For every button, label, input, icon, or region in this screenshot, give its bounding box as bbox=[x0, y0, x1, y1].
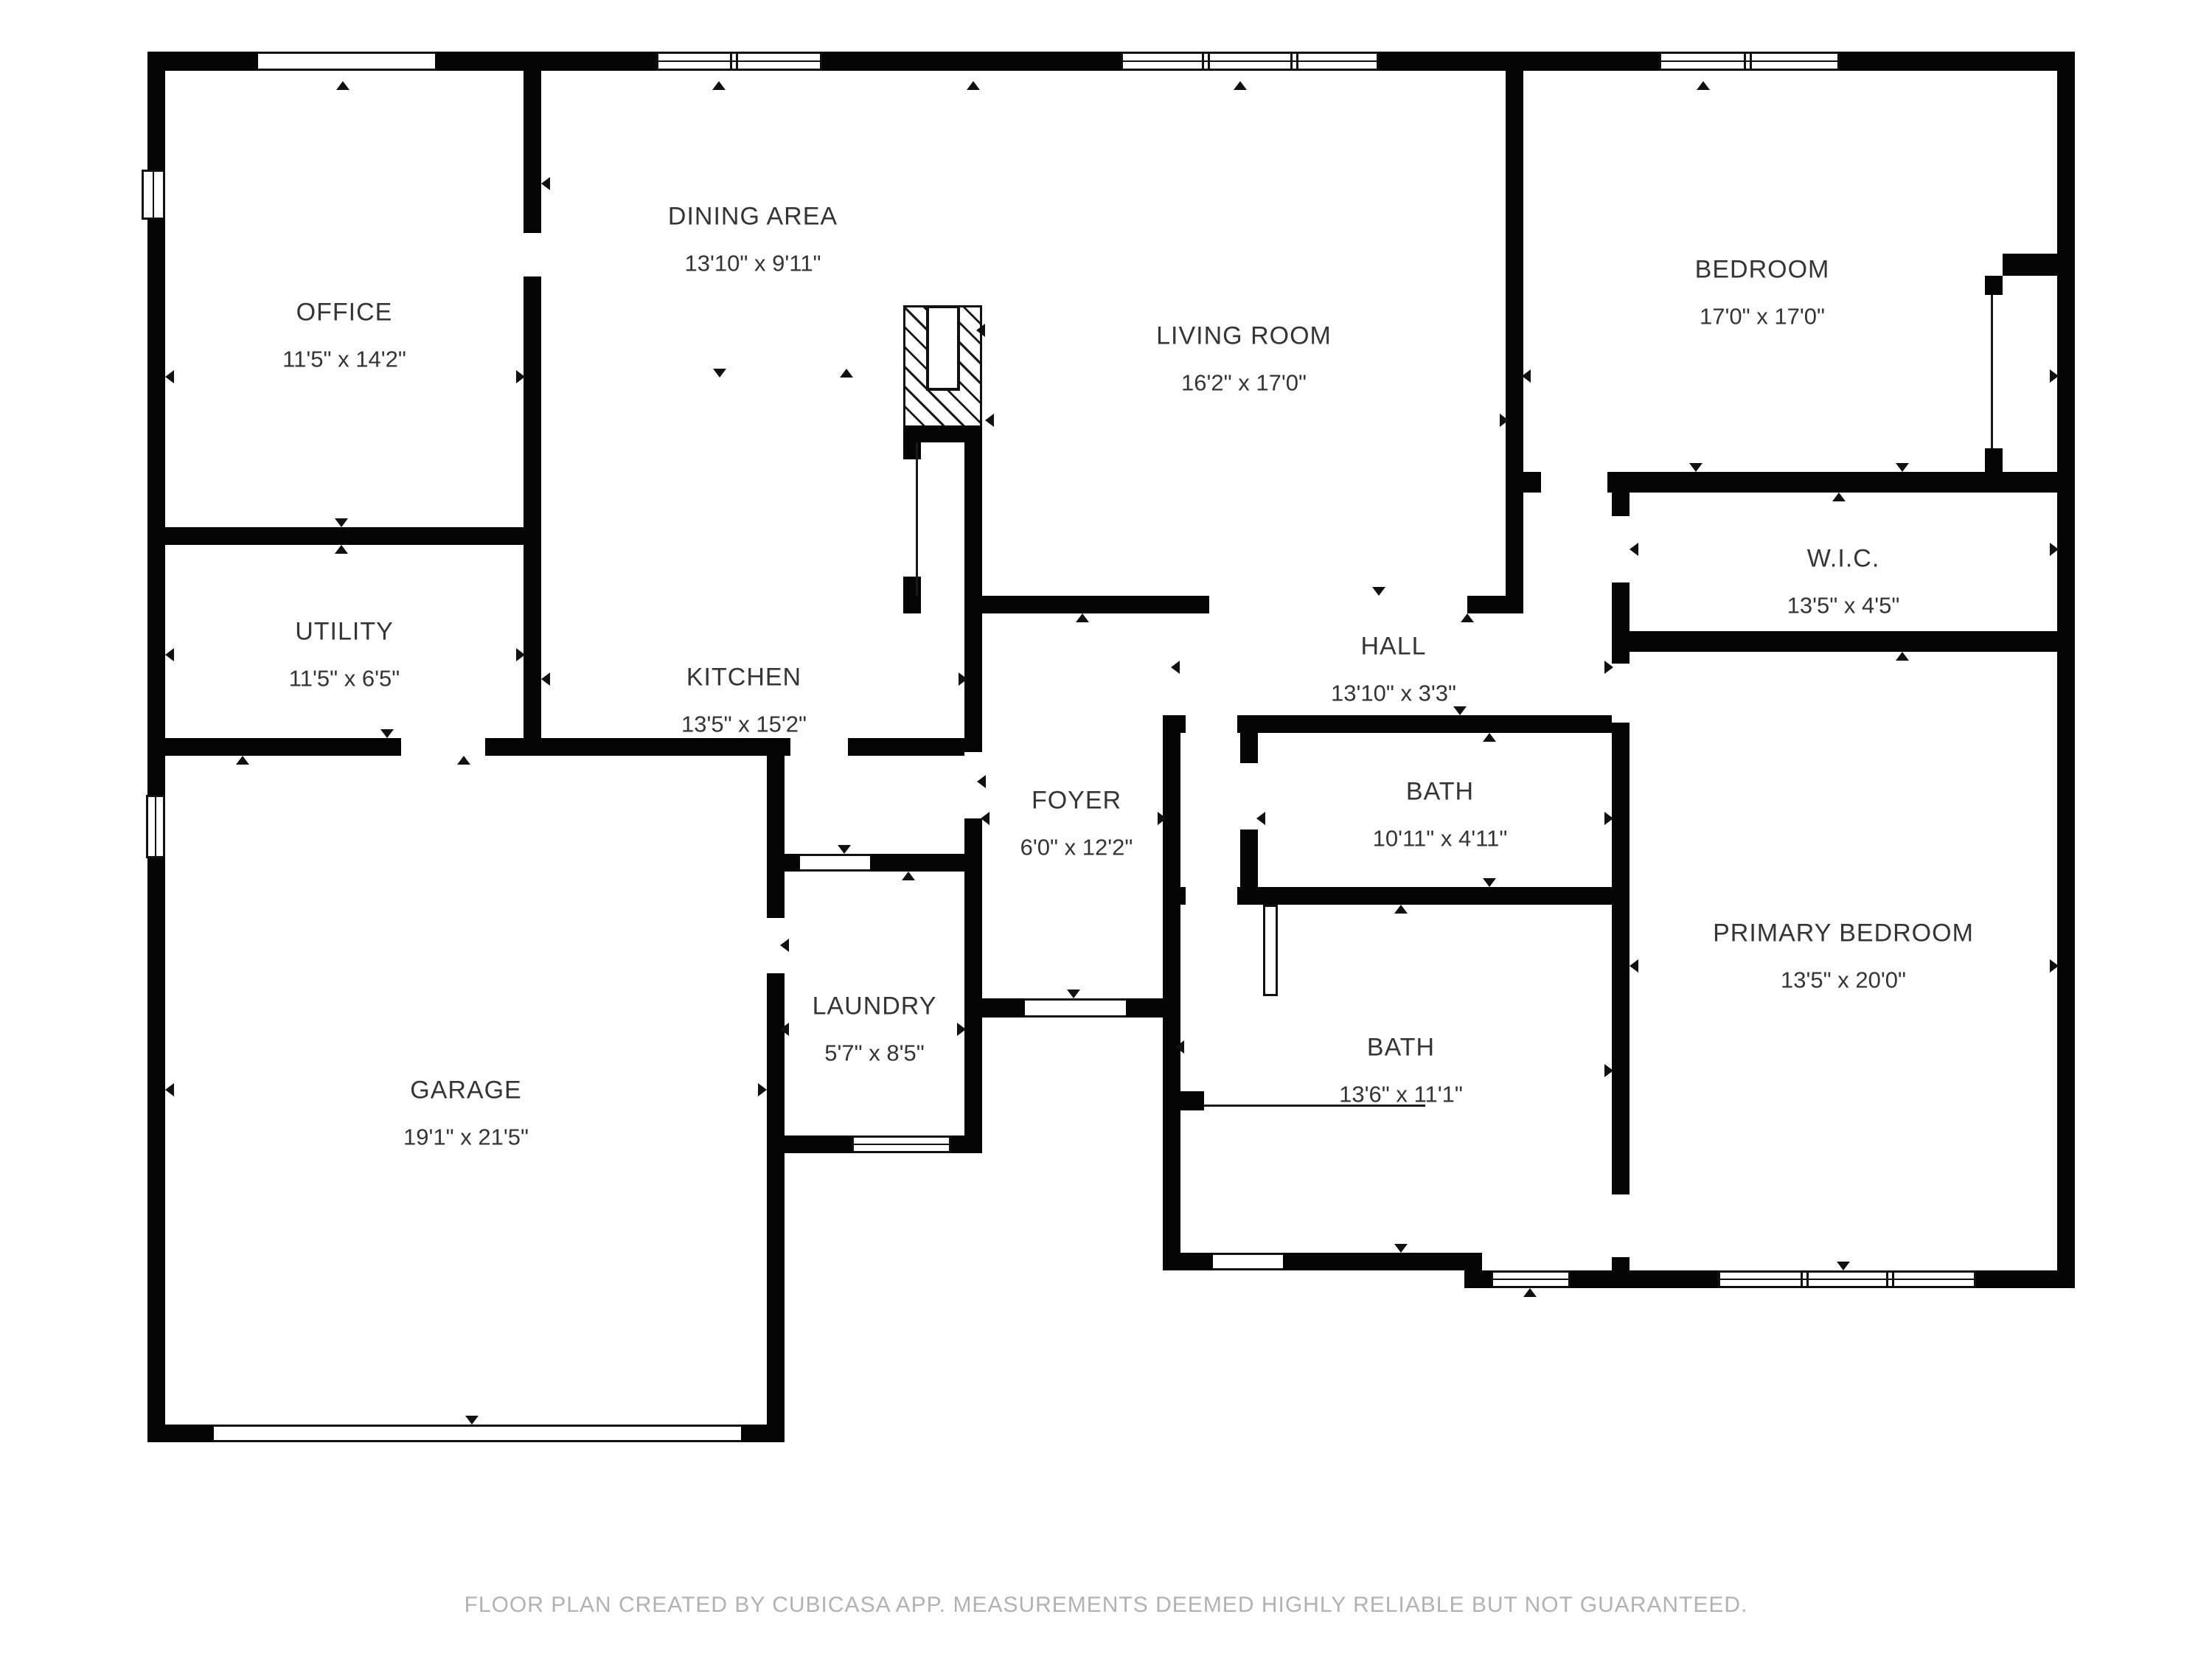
dimension-arrow-left bbox=[1630, 959, 1638, 973]
cased-opening bbox=[1213, 1253, 1283, 1270]
dimension-arrow-up bbox=[1483, 733, 1496, 742]
dimension-arrow-up bbox=[712, 81, 726, 90]
door-leaf-line bbox=[916, 439, 918, 596]
window-mullion bbox=[736, 52, 738, 71]
shower-glass bbox=[1263, 905, 1278, 996]
dimension-arrow-up bbox=[1394, 905, 1408, 914]
window-center-line bbox=[852, 1144, 951, 1145]
wall bbox=[1612, 472, 1630, 1270]
dimension-arrow-left bbox=[1522, 369, 1531, 383]
dimension-arrow-right bbox=[1500, 414, 1509, 427]
fireplace-firebox bbox=[926, 305, 960, 391]
dimension-arrow-right bbox=[758, 1083, 767, 1096]
dimension-arrow-left bbox=[985, 414, 994, 427]
wall bbox=[1506, 71, 1523, 613]
room-label-wic: W.I.C.13'5" x 4'5" bbox=[1787, 545, 1900, 619]
dimension-arrow-up bbox=[1461, 613, 1474, 622]
dimension-arrow-right bbox=[2050, 959, 2059, 973]
wall bbox=[2057, 52, 2075, 1288]
room-dimensions: 5'7" x 8'5" bbox=[813, 1040, 937, 1067]
dimension-arrow-right bbox=[1604, 1064, 1613, 1077]
floor-plan: OFFICE11'5" x 14'2"DINING AREA13'10" x 9… bbox=[0, 0, 2212, 1659]
dimension-arrow-down bbox=[335, 518, 348, 527]
window-mullion bbox=[1801, 1270, 1803, 1288]
dimension-arrow-up bbox=[967, 81, 980, 90]
dimension-arrow-up bbox=[1697, 81, 1710, 90]
dimension-arrow-left bbox=[780, 939, 789, 952]
fireplace-base bbox=[903, 426, 982, 442]
room-name: W.I.C. bbox=[1787, 545, 1900, 574]
window-center-line bbox=[155, 795, 156, 858]
door-opening bbox=[1612, 516, 1630, 582]
window-tick bbox=[1377, 52, 1379, 71]
dimension-arrow-left bbox=[977, 775, 986, 788]
door-opening bbox=[1612, 664, 1630, 723]
dimension-arrow-up bbox=[1832, 493, 1846, 501]
window-center-line bbox=[153, 170, 154, 220]
window-mullion bbox=[1750, 52, 1752, 71]
dimension-arrow-up bbox=[1234, 81, 1247, 90]
window-tick bbox=[146, 795, 165, 797]
dimension-arrow-down bbox=[465, 1416, 479, 1425]
dimension-arrow-down bbox=[1837, 1262, 1850, 1270]
door-opening bbox=[401, 738, 485, 756]
window-mullion bbox=[1744, 52, 1746, 71]
room-name: BATH bbox=[1339, 1034, 1463, 1062]
room-name: BEDROOM bbox=[1695, 256, 1830, 285]
room-dimensions: 19'1" x 21'5" bbox=[403, 1124, 529, 1151]
wall bbox=[1985, 276, 2003, 295]
room-label-office: OFFICE11'5" x 14'2" bbox=[282, 299, 406, 373]
room-dimensions: 13'10" x 9'11" bbox=[668, 251, 838, 277]
room-dimensions: 13'10" x 3'3" bbox=[1331, 681, 1456, 707]
dimension-arrow-left bbox=[976, 324, 985, 337]
window-tick bbox=[1837, 52, 1840, 71]
wall bbox=[524, 71, 541, 233]
wall bbox=[524, 276, 541, 738]
dimension-arrow-down bbox=[1372, 587, 1385, 596]
dimension-arrow-up bbox=[1896, 652, 1909, 661]
dimension-arrow-down bbox=[1067, 990, 1080, 998]
window-center-line bbox=[656, 60, 822, 62]
dimension-arrow-up bbox=[335, 545, 348, 554]
cased-opening bbox=[800, 854, 870, 872]
window-center-line bbox=[1718, 1279, 1976, 1280]
room-name: FOYER bbox=[1020, 787, 1133, 815]
window-mullion bbox=[1296, 52, 1298, 71]
window-mullion bbox=[1208, 52, 1210, 71]
room-label-foyer: FOYER6'0" x 12'2" bbox=[1020, 787, 1133, 861]
room-name: HALL bbox=[1331, 633, 1456, 661]
door-opening bbox=[1186, 887, 1237, 905]
dimension-arrow-left bbox=[541, 672, 550, 686]
window-tick bbox=[1568, 1270, 1571, 1288]
window-tick bbox=[852, 1135, 854, 1153]
room-label-living-room: LIVING ROOM16'2" x 17'0" bbox=[1156, 322, 1332, 397]
window-tick bbox=[820, 52, 822, 71]
cased-opening bbox=[214, 1425, 741, 1442]
wall bbox=[165, 527, 524, 545]
window-center-line bbox=[1121, 60, 1379, 62]
footer-disclaimer: FLOOR PLAN CREATED BY CUBICASA APP. MEAS… bbox=[0, 1593, 2212, 1618]
window-tick bbox=[1974, 1270, 1976, 1288]
room-name: DINING AREA bbox=[668, 203, 838, 232]
wall bbox=[1163, 1253, 1482, 1270]
room-label-bath-upper: BATH10'11" x 4'11" bbox=[1373, 778, 1508, 852]
door-opening bbox=[1541, 472, 1607, 493]
dimension-arrow-right bbox=[2050, 543, 2059, 556]
dimension-arrow-down bbox=[713, 369, 726, 378]
door-opening bbox=[1209, 596, 1467, 613]
door-opening bbox=[1612, 1194, 1630, 1257]
room-dimensions: 13'5" x 4'5" bbox=[1787, 593, 1900, 619]
window-tick bbox=[146, 856, 165, 858]
wall bbox=[1163, 715, 1180, 1270]
cased-opening bbox=[258, 52, 435, 71]
dimension-arrow-left bbox=[780, 1023, 789, 1036]
door-leaf-line bbox=[1991, 295, 1993, 448]
room-name: UTILITY bbox=[289, 618, 400, 647]
dimension-arrow-up bbox=[236, 756, 249, 765]
room-dimensions: 17'0" x 17'0" bbox=[1695, 304, 1830, 330]
window-tick bbox=[1121, 52, 1123, 71]
room-label-bath-lower: BATH13'6" x 11'1" bbox=[1339, 1034, 1463, 1108]
window-mullion bbox=[730, 52, 732, 71]
room-label-utility: UTILITY11'5" x 6'5" bbox=[289, 618, 400, 692]
dimension-arrow-down bbox=[1394, 1244, 1408, 1253]
room-dimensions: 16'2" x 17'0" bbox=[1156, 370, 1332, 397]
room-dimensions: 13'6" x 11'1" bbox=[1339, 1082, 1463, 1108]
window-tick bbox=[656, 52, 658, 71]
dimension-arrow-up bbox=[902, 872, 915, 880]
door-opening bbox=[1186, 715, 1237, 733]
dimension-arrow-right bbox=[2050, 369, 2059, 383]
dimension-arrow-down bbox=[380, 729, 394, 738]
window-center-line bbox=[1491, 1279, 1571, 1280]
wall bbox=[1985, 448, 2003, 472]
dimension-arrow-right bbox=[959, 672, 967, 686]
door-opening bbox=[524, 233, 541, 276]
dimension-arrow-left bbox=[541, 177, 550, 190]
dimension-arrow-up bbox=[336, 81, 349, 90]
room-dimensions: 11'5" x 14'2" bbox=[282, 347, 406, 373]
window-tick bbox=[1491, 1270, 1493, 1288]
room-label-primary-bedroom: PRIMARY BEDROOM13'5" x 20'0" bbox=[1713, 919, 1974, 994]
room-name: LIVING ROOM bbox=[1156, 322, 1332, 351]
wall bbox=[1612, 631, 2075, 652]
dimension-arrow-down bbox=[1453, 706, 1467, 715]
dimension-arrow-down bbox=[1483, 878, 1496, 887]
dimension-arrow-up bbox=[1523, 1288, 1537, 1297]
dimension-arrow-down bbox=[1896, 463, 1909, 472]
window-tick bbox=[1718, 1270, 1720, 1288]
dimension-arrow-left bbox=[165, 370, 174, 383]
dimension-arrow-right bbox=[1158, 812, 1166, 825]
room-name: GARAGE bbox=[403, 1077, 529, 1105]
dimension-arrow-left bbox=[165, 648, 174, 661]
room-dimensions: 10'11" x 4'11" bbox=[1373, 826, 1508, 852]
wall bbox=[767, 854, 982, 872]
room-dimensions: 6'0" x 12'2" bbox=[1020, 835, 1133, 861]
window-mullion bbox=[1806, 1270, 1809, 1288]
dimension-arrow-left bbox=[165, 1083, 174, 1096]
dimension-arrow-down bbox=[838, 845, 851, 854]
window-mullion bbox=[1886, 1270, 1888, 1288]
door-opening bbox=[1240, 763, 1258, 829]
dimension-arrow-left bbox=[981, 812, 990, 825]
window-tick bbox=[949, 1135, 951, 1153]
dimension-arrow-left bbox=[1256, 812, 1265, 825]
room-name: OFFICE bbox=[282, 299, 406, 327]
dimension-arrow-up bbox=[1076, 613, 1089, 622]
dimension-arrow-left bbox=[1171, 661, 1180, 674]
cased-opening bbox=[1025, 998, 1126, 1018]
dimension-arrow-left bbox=[1175, 1040, 1184, 1054]
dimension-arrow-right bbox=[957, 1023, 966, 1036]
room-dimensions: 11'5" x 6'5" bbox=[289, 666, 400, 692]
wall bbox=[1180, 1091, 1204, 1110]
dimension-arrow-up bbox=[840, 369, 853, 378]
dimension-arrow-right bbox=[1604, 661, 1613, 674]
room-dimensions: 13'5" x 20'0" bbox=[1713, 967, 1974, 994]
window-mullion bbox=[1290, 52, 1293, 71]
wall bbox=[147, 738, 982, 756]
dimension-arrow-up bbox=[457, 756, 470, 765]
door-opening bbox=[790, 738, 848, 756]
room-name: PRIMARY BEDROOM bbox=[1713, 919, 1974, 948]
room-label-hall: HALL13'10" x 3'3" bbox=[1331, 633, 1456, 707]
room-label-dining-area: DINING AREA13'10" x 9'11" bbox=[668, 203, 838, 277]
room-label-kitchen: KITCHEN13'5" x 15'2" bbox=[681, 664, 807, 738]
room-name: BATH bbox=[1373, 778, 1508, 807]
room-dimensions: 13'5" x 15'2" bbox=[681, 712, 807, 738]
window-tick bbox=[1659, 52, 1661, 71]
room-label-bedroom: BEDROOM17'0" x 17'0" bbox=[1695, 256, 1830, 330]
dimension-arrow-down bbox=[1689, 463, 1703, 472]
room-label-garage: GARAGE19'1" x 21'5" bbox=[403, 1077, 529, 1151]
dimension-arrow-right bbox=[516, 370, 525, 383]
dimension-arrow-left bbox=[1630, 543, 1638, 556]
room-label-laundry: LAUNDRY5'7" x 8'5" bbox=[813, 992, 937, 1067]
window-mullion bbox=[1202, 52, 1204, 71]
window-tick bbox=[142, 170, 165, 172]
room-name: LAUNDRY bbox=[813, 992, 937, 1021]
wall bbox=[903, 577, 921, 613]
window-tick bbox=[142, 218, 165, 220]
dimension-arrow-right bbox=[1604, 812, 1613, 825]
room-name: KITCHEN bbox=[681, 664, 807, 692]
dimension-arrow-right bbox=[516, 648, 525, 661]
wall bbox=[2003, 254, 2075, 276]
window-mullion bbox=[1892, 1270, 1894, 1288]
